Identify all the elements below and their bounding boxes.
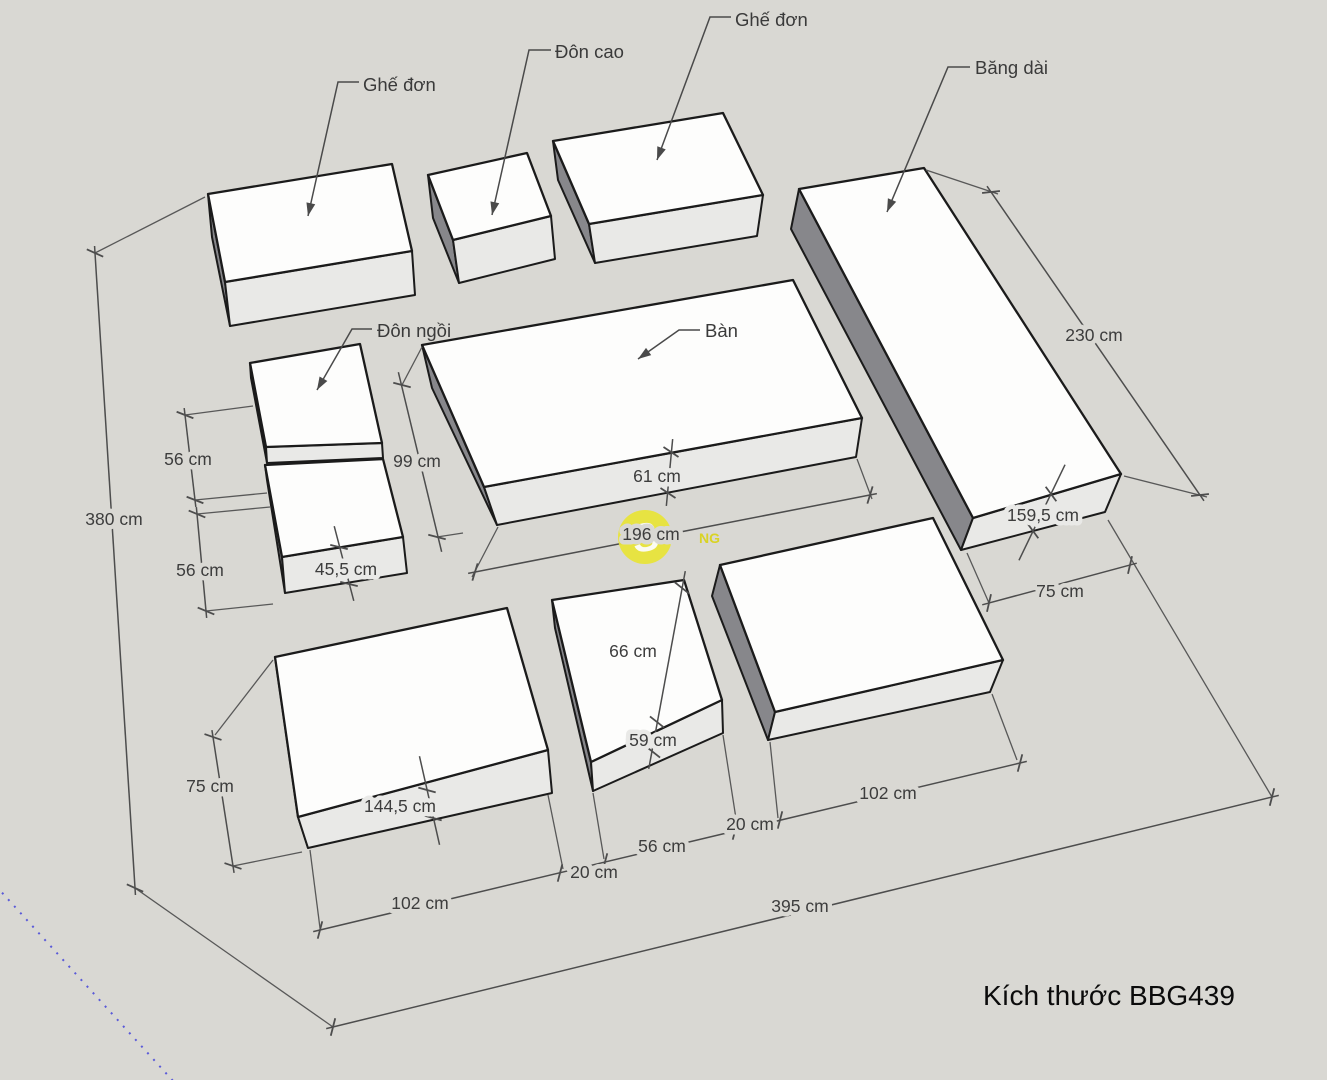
label-ban: Bàn	[705, 320, 738, 341]
furniture-dimension-diagram: S NG 380 cm 56 cm 56 cm 45,5 cm 99 cm 61…	[0, 0, 1327, 1080]
label-don-ngoi: Đôn ngồi	[377, 320, 451, 341]
label-don-cao: Đôn cao	[555, 41, 624, 62]
dim-56cm-b: 56 cm	[176, 560, 224, 580]
dim-102cm-b: 102 cm	[859, 783, 916, 803]
box-don-ngoi-1	[250, 344, 383, 463]
box-ghe-don-2	[553, 113, 763, 263]
watermark-text-fragment: NG	[699, 530, 720, 546]
dim-196cm: 196 cm	[622, 524, 679, 544]
label-bang-dai: Băng dài	[975, 57, 1048, 78]
dim-99cm: 99 cm	[393, 451, 441, 471]
dim-75cm-left: 75 cm	[186, 776, 234, 796]
dim-61cm: 61 cm	[633, 466, 681, 486]
dim-56cm-a: 56 cm	[164, 449, 212, 469]
dim-75cm-right: 75 cm	[1036, 581, 1084, 601]
label-ghe-don-2: Ghế đơn	[735, 9, 808, 30]
label-ghe-don-1: Ghế đơn	[363, 74, 436, 95]
dim-20cm-a: 20 cm	[570, 862, 618, 882]
page-title: Kích thước BBG439	[983, 980, 1235, 1011]
dim-59cm: 59 cm	[629, 730, 677, 750]
dim-102cm-a: 102 cm	[391, 893, 448, 913]
dim-159-5cm: 159,5 cm	[1007, 505, 1079, 525]
dim-144-5cm: 144,5 cm	[364, 796, 436, 816]
dim-45-5cm: 45,5 cm	[315, 559, 377, 579]
dim-66cm: 66 cm	[609, 641, 657, 661]
diagram-stage: S NG 380 cm 56 cm 56 cm 45,5 cm 99 cm 61…	[0, 0, 1327, 1080]
dim-20cm-b: 20 cm	[726, 814, 774, 834]
dim-395cm: 395 cm	[771, 896, 828, 916]
dim-380cm: 380 cm	[85, 509, 142, 529]
dim-230cm: 230 cm	[1065, 325, 1122, 345]
dim-56cm-c: 56 cm	[638, 836, 686, 856]
